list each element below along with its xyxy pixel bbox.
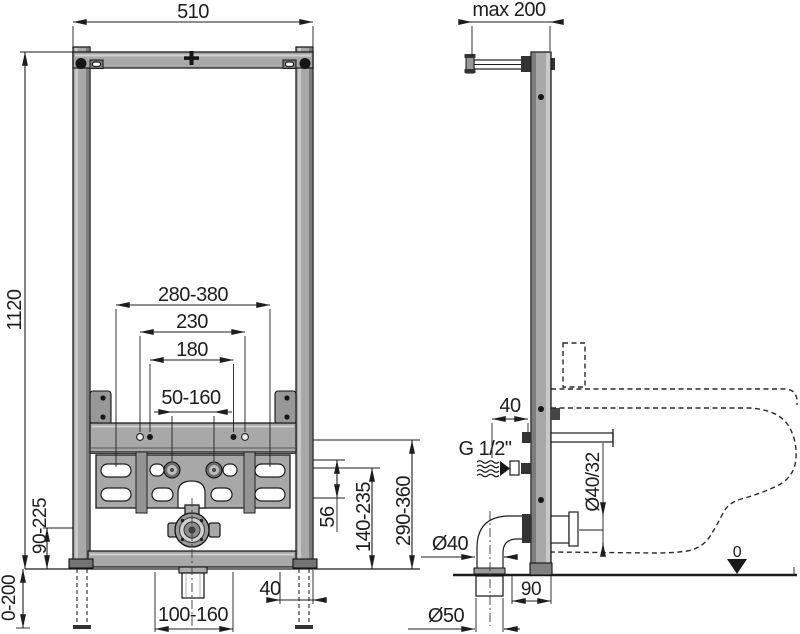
corner-bolt-left: [76, 58, 87, 69]
threaded-bushing-right: [206, 462, 222, 478]
front-upper-crossbar: [90, 423, 296, 452]
drain-spigot: [179, 567, 207, 598]
dim-plate-gap: 56: [317, 460, 339, 532]
floor-drain-pipe: [476, 576, 503, 596]
dim-label: 56: [317, 506, 339, 528]
dim-label: 280-380: [158, 284, 228, 306]
side-view: 0: [465, 52, 798, 626]
water-symbol-icon: [477, 461, 499, 477]
dim-label: Ø40/32: [583, 452, 604, 511]
vertical-strap: [136, 452, 147, 513]
dim-bracket-height: 140-235: [353, 468, 375, 569]
dim-outlet-height: 290-360: [393, 440, 415, 569]
datum-label: 0: [733, 544, 742, 561]
side-profile: [530, 52, 560, 575]
dim-side-height-range: 90-225: [30, 498, 73, 569]
dim-label: 1120: [4, 289, 26, 330]
fixing-bracket-left: [90, 391, 111, 424]
foot-right: [293, 559, 317, 568]
fixing-hole: [137, 434, 144, 441]
dim-label: 50-160: [161, 387, 221, 409]
dim-label: 100-160: [158, 604, 228, 626]
fixing-hole: [242, 434, 249, 441]
dim-foot-depth: 40: [259, 570, 326, 604]
slot: [223, 464, 237, 476]
slot: [152, 488, 173, 501]
bidet-fixing-hole: [563, 343, 585, 387]
dim-label: max 200: [472, 0, 546, 21]
arch-cutout: [178, 481, 205, 508]
slot: [255, 488, 285, 501]
dim-outlet-pipe: Ø40/32: [579, 443, 604, 556]
front-right-post: [296, 47, 313, 560]
front-top-crossbar: [73, 51, 313, 69]
dim-floor-offset: 90: [512, 576, 551, 604]
dim-label: 230: [176, 311, 208, 333]
floor-socket-rim: [474, 568, 505, 574]
side-foot: [530, 563, 552, 575]
front-mounting-plate: [90, 452, 296, 513]
drawing-canvas: 0 510 max 200 1120 280-380 230: [0, 0, 800, 634]
front-left-post: [73, 47, 90, 560]
front-view: [69, 47, 317, 629]
dim-wall-distance: max 200: [459, 0, 563, 56]
corner-bolt-right: [300, 58, 311, 69]
floor-datum-icon: 0: [727, 544, 747, 574]
drain-flange: [168, 505, 220, 547]
dim-label: 40: [499, 395, 521, 417]
vertical-strap: [244, 452, 255, 513]
dim-label: 180: [176, 339, 208, 361]
dim-frame-height: 1120: [4, 52, 73, 569]
dim-fixing-180: 180: [150, 339, 234, 432]
dim-fixing-230: 230: [140, 311, 245, 432]
fixing-hole: [147, 434, 153, 440]
bidet-outline: [551, 343, 797, 553]
dim-label: Ø40: [432, 533, 469, 555]
slot: [150, 464, 164, 476]
dim-label: 510: [177, 1, 209, 23]
dim-label: 290-360: [393, 476, 415, 546]
water-connection: [477, 461, 531, 477]
flow-arrow-icon: [500, 461, 510, 476]
slot: [211, 488, 232, 501]
dim-label: 40: [259, 578, 281, 600]
fixing-stud-nub: [551, 408, 560, 420]
dim-label: 90-225: [30, 498, 51, 554]
threaded-bushing-left: [164, 462, 180, 478]
dim-label: Ø50: [428, 605, 465, 627]
dim-label: 90: [521, 579, 541, 600]
dim-frame-width: 510: [73, 1, 313, 49]
dim-label: 140-235: [353, 482, 375, 552]
dim-label: 0-200: [0, 575, 20, 621]
slot: [101, 488, 131, 501]
foot-left: [69, 559, 93, 568]
technical-drawing: 0 510 max 200 1120 280-380 230: [0, 0, 800, 634]
dim-leg-extension: 0-200: [0, 569, 30, 628]
dim-floor-pipe-dia: Ø50: [408, 598, 520, 632]
fixing-hole: [231, 434, 237, 440]
fixing-bracket-right: [275, 391, 296, 424]
water-thread-label: G 1/2": [458, 438, 511, 460]
